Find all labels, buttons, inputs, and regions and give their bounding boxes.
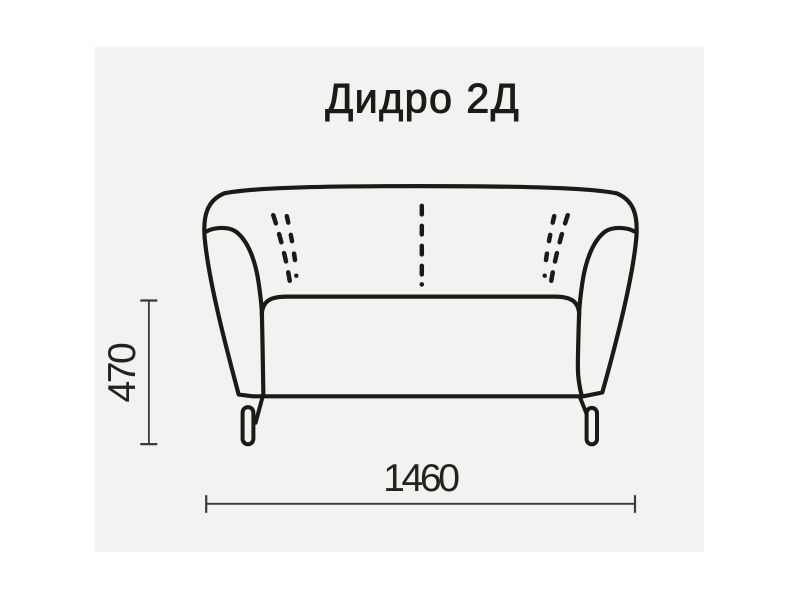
svg-text:470: 470 bbox=[101, 342, 144, 402]
svg-text:1460: 1460 bbox=[383, 457, 460, 500]
svg-text:Дидро 2Д: Дидро 2Д bbox=[325, 76, 519, 122]
